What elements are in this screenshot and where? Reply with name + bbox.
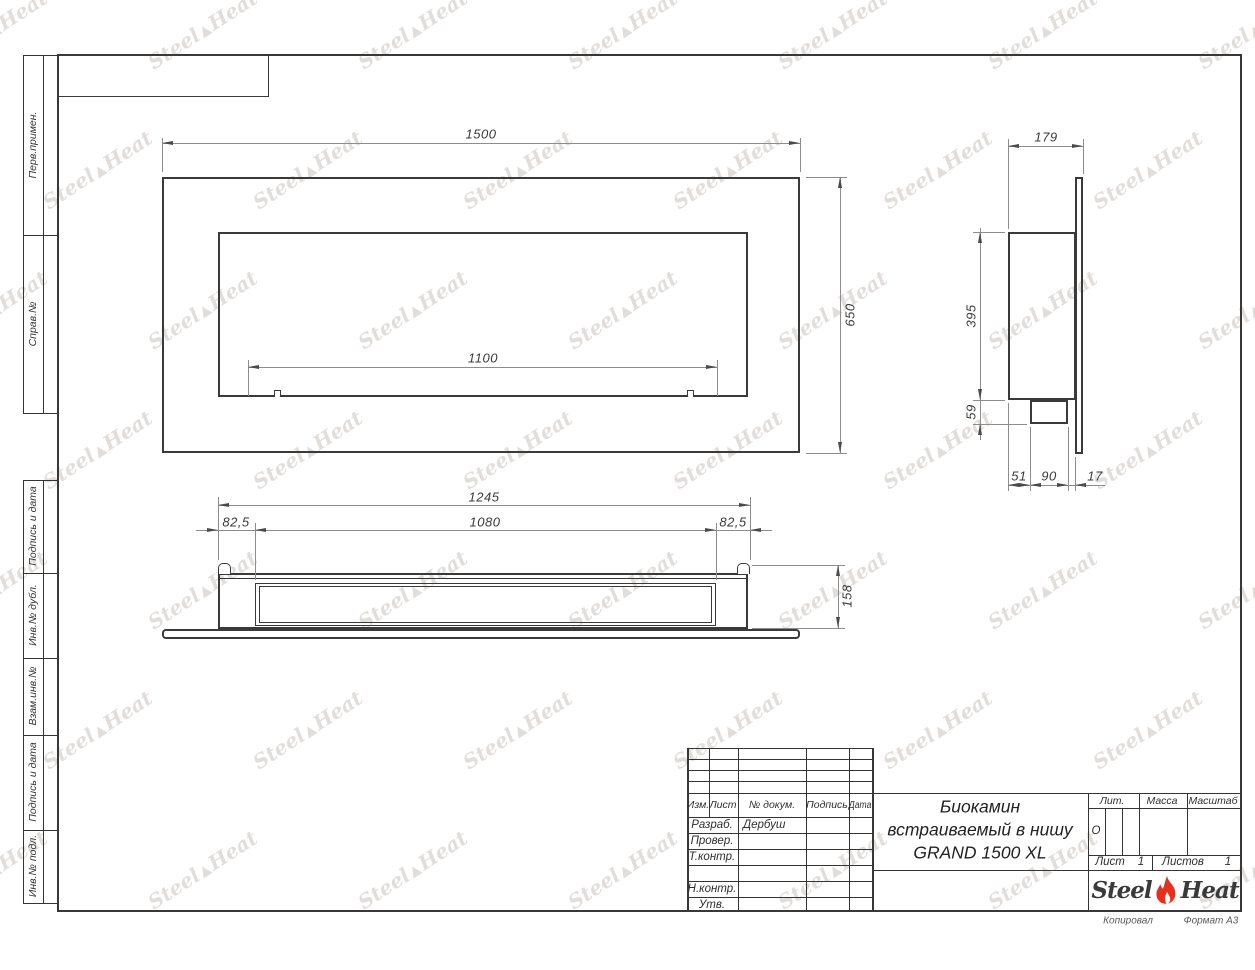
tb-col-docnum: № докум.: [749, 799, 795, 811]
tb-col-podpis: Подпись: [806, 799, 848, 811]
dim-front-height: 650: [843, 303, 858, 326]
margin-label-inv-podl: Инв.№ подл.: [27, 835, 39, 897]
tb-scale-header: Масштаб: [1188, 795, 1237, 807]
tb-title-line2: встраиваемый в нишу: [887, 820, 1072, 841]
dim-side-depth: 179: [1034, 130, 1057, 145]
bottom-view-wall-plate: [162, 629, 800, 639]
front-view-burner-clip-left: [274, 390, 281, 397]
margin-label-sprav-no: Справ.№: [27, 302, 39, 347]
line: [1030, 427, 1031, 491]
side-view-burner-tray: [1030, 400, 1068, 424]
title-block-line: [687, 833, 872, 834]
margin-strip: [23, 480, 24, 903]
tb-row-tkontr: Т.контр.: [689, 851, 735, 863]
title-block-line: [687, 770, 872, 771]
line: [800, 138, 801, 172]
dimension-arrow: [978, 232, 982, 243]
tb-col-izm: Изм.: [687, 799, 709, 811]
title-block-line: [687, 793, 1240, 794]
title-block-line: [687, 817, 872, 818]
dimension-arrow: [1008, 144, 1019, 148]
margin-strip: [23, 903, 57, 904]
title-block-line: [1152, 855, 1153, 870]
line: [973, 400, 1005, 401]
logo-steel-text: Steel: [1091, 877, 1151, 904]
dim-side-bottom-2: 90: [1041, 469, 1056, 484]
title-block-line: [687, 897, 872, 898]
margin-strip: [23, 55, 57, 56]
title-block-line: [687, 849, 872, 850]
front-view-opening: [218, 232, 748, 397]
dimension-arrow: [706, 365, 717, 369]
dim-side-tray-height: 59: [964, 404, 979, 419]
margin-label-vzam-inv: Взам.инв.№: [27, 666, 39, 725]
title-block-line: [806, 748, 807, 910]
tb-title-line1: Биокамин: [940, 797, 1020, 818]
margin-strip: [23, 830, 57, 831]
side-view-front-plate: [1075, 177, 1083, 454]
title-block-line: [687, 865, 872, 866]
footer-copied: Копировал: [1103, 916, 1153, 927]
tb-col-list: Лист: [709, 799, 736, 811]
title-block-line: [1122, 808, 1123, 855]
tb-mass-header: Масса: [1146, 795, 1177, 807]
tb-sheet-value: 1: [1138, 856, 1144, 868]
tb-lit-value: О: [1092, 825, 1101, 837]
dimension-arrow: [218, 503, 229, 507]
line: [752, 565, 845, 566]
flame-icon: [1155, 876, 1178, 905]
line: [716, 523, 717, 580]
dimension-arrow: [1072, 144, 1083, 148]
line: [806, 453, 847, 454]
margin-strip: [23, 658, 57, 659]
title-block-line: [1105, 808, 1106, 855]
dim-line-1100: [248, 367, 717, 368]
frame-bottom: [57, 910, 1242, 912]
dim-line-1500: [162, 143, 800, 144]
dimension-arrow: [978, 424, 982, 435]
dimension-arrow: [750, 528, 761, 532]
margin-strip: [23, 55, 24, 413]
drawing-sheet: Steel▲HeatSteel▲HeatSteel▲HeatSteel▲Heat…: [0, 0, 1255, 970]
dimension-arrow: [739, 503, 750, 507]
tb-col-data: Дата: [849, 799, 872, 811]
line: [255, 523, 256, 580]
dimension-arrow: [1057, 483, 1068, 487]
tb-row-nkontr: Н.контр.: [688, 883, 737, 895]
tb-title-line3: GRAND 1500 XL: [913, 843, 1046, 864]
bottom-view-slot-inner: [259, 586, 712, 623]
tb-row-prover: Провер.: [691, 835, 734, 847]
dimension-arrow: [836, 565, 840, 576]
dim-line-825-1080-825: [196, 530, 772, 531]
title-block-line: [1088, 793, 1089, 910]
side-view-body: [1008, 232, 1076, 400]
dim-bottom-depth: 158: [840, 584, 855, 607]
dimension-arrow: [978, 389, 982, 400]
tb-sheets-label: Листов: [1162, 856, 1204, 868]
bottom-view-bracket-left: [218, 563, 231, 574]
dim-line-650: [840, 177, 841, 453]
dim-front-width: 1500: [466, 127, 497, 142]
dim-bottom-margin-left: 82,5: [222, 515, 249, 530]
dim-bottom-slot: 1080: [470, 515, 501, 530]
line: [752, 628, 845, 629]
dimension-arrow: [836, 617, 840, 628]
steelheat-logo: Steel Heat: [1090, 871, 1240, 909]
margin-label-podpis-data-1: Подпись и дата: [27, 486, 39, 565]
tb-lit-header: Лит.: [1100, 795, 1125, 807]
dimension-arrow: [838, 442, 842, 453]
dim-side-bottom-1: 51: [1011, 469, 1026, 484]
footer-format: Формат А3: [1184, 916, 1239, 927]
margin-strip: [23, 735, 57, 736]
line: [1083, 139, 1084, 174]
dimension-arrow: [1030, 483, 1041, 487]
front-view-burner-clip-right: [687, 390, 694, 397]
dim-line-395-59: [980, 228, 981, 440]
line: [717, 360, 718, 396]
dimension-arrow: [705, 528, 716, 532]
dimension-arrow: [162, 141, 173, 145]
line: [1068, 427, 1069, 491]
margin-strip: [43, 480, 44, 903]
line: [1008, 139, 1009, 229]
dim-side-body-height: 395: [964, 304, 979, 327]
title-block-line: [1139, 793, 1140, 855]
title-block-line: [687, 759, 872, 760]
dimension-arrow: [255, 528, 266, 532]
margin-label-perv-primen: Перв.примен.: [27, 112, 39, 179]
line: [1008, 403, 1009, 491]
margin-strip: [43, 55, 44, 413]
frame-left: [57, 54, 59, 912]
dimension-arrow: [1075, 483, 1086, 487]
dim-line-1245: [218, 505, 750, 506]
dim-front-burner: 1100: [468, 351, 498, 366]
margin-strip: [23, 413, 57, 414]
margin-strip: [23, 573, 57, 574]
title-block-line: [1088, 808, 1240, 809]
bottom-view-bracket-right: [737, 563, 750, 574]
title-block-line: [738, 748, 739, 910]
dim-bottom-margin-right: 82,5: [719, 515, 746, 530]
title-block-line: [849, 748, 850, 910]
bottom-view-body-inner-edge: [220, 578, 746, 579]
title-block-line: [872, 748, 874, 910]
title-block-line: [687, 748, 872, 749]
frame-right: [1240, 54, 1242, 912]
tb-sheet-label: Лист: [1095, 856, 1125, 868]
tb-row-razrab: Разраб.: [691, 819, 733, 831]
title-block-line: [687, 881, 872, 882]
title-block-line: [687, 781, 872, 782]
tb-sheets-value: 1: [1225, 856, 1231, 868]
tb-razrab-name: Дербуш: [743, 819, 785, 831]
tb-row-utv: Утв.: [699, 899, 725, 911]
margin-strip: [23, 235, 57, 236]
margin-strip: [23, 480, 57, 481]
logo-heat-text: Heat: [1181, 877, 1239, 904]
dimension-arrow: [789, 141, 800, 145]
dimension-arrow: [838, 177, 842, 188]
margin-label-inv-dubl: Инв.№ дубл.: [27, 584, 39, 646]
dimension-arrow: [207, 528, 218, 532]
dimension-arrow: [248, 365, 259, 369]
margin-label-podpis-data-2: Подпись и дата: [27, 742, 39, 821]
dim-side-bottom-3: 17: [1087, 469, 1102, 484]
spare-designation-box: [57, 55, 269, 97]
dim-bottom-total: 1245: [469, 490, 500, 505]
